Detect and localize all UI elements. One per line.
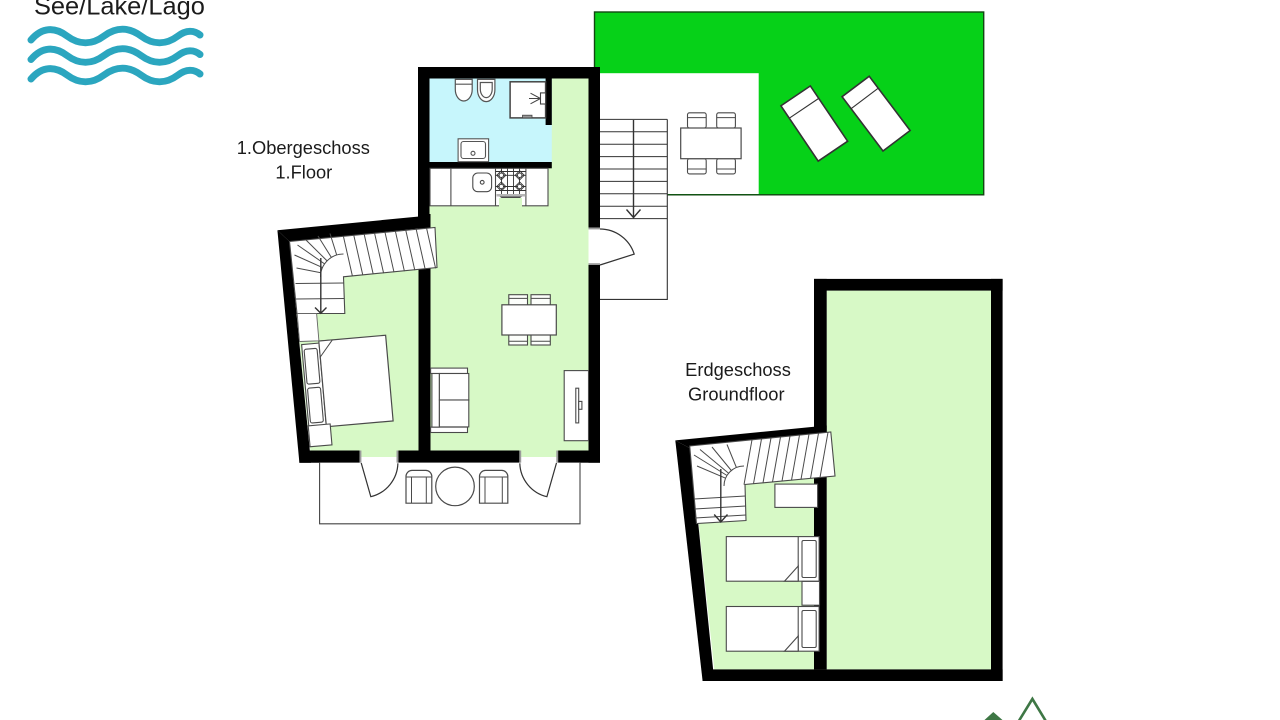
svg-text:Erdgeschoss: Erdgeschoss [685,359,791,380]
svg-text:See/Lake/Lago: See/Lake/Lago [34,0,205,21]
svg-text:1.Obergeschoss: 1.Obergeschoss [237,137,370,158]
svg-text:Groundfloor: Groundfloor [688,384,785,405]
svg-text:1.Floor: 1.Floor [275,162,332,183]
